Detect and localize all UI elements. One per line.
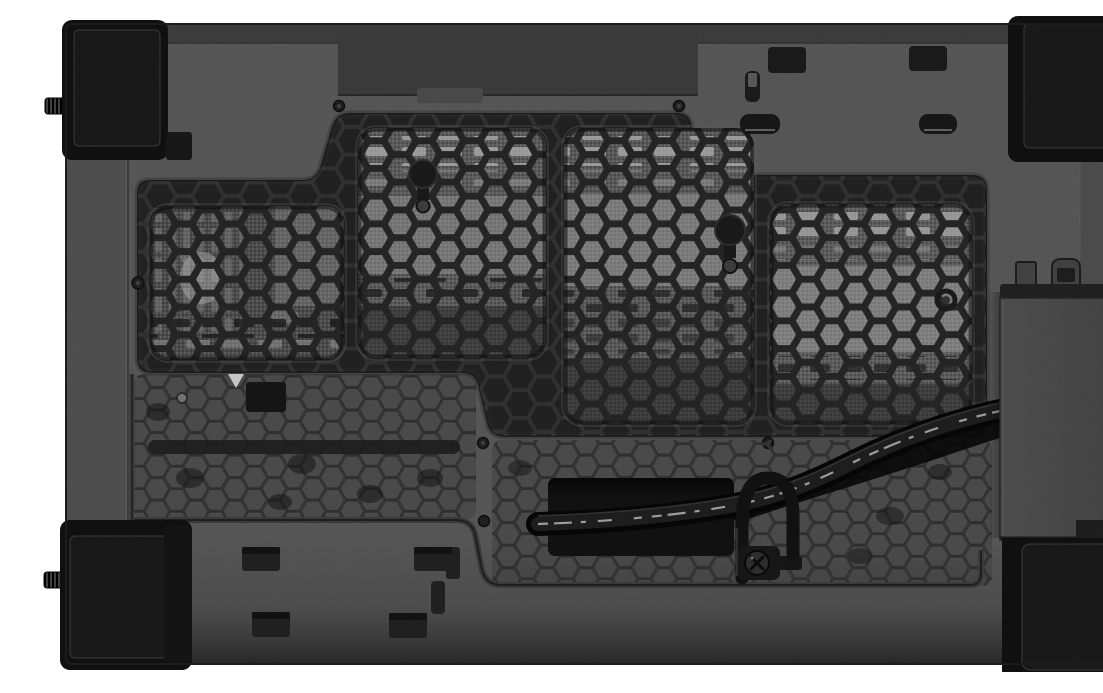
pc-case-bottom-photo [40, 16, 1103, 677]
product-photo-canvas [40, 16, 1103, 677]
grain-texture [66, 24, 1103, 664]
